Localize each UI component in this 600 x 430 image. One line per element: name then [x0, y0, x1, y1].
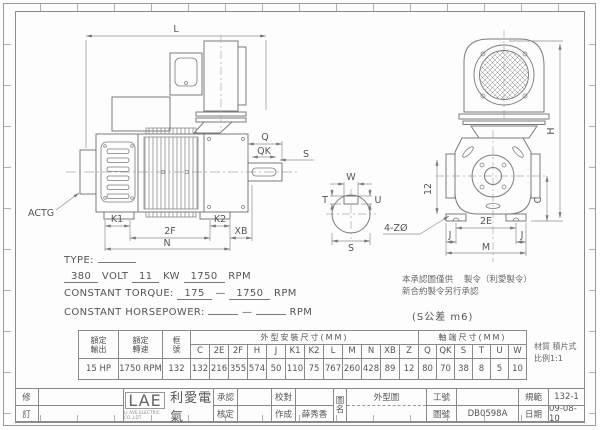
- logo-subtext: LI AVE ELECTRIC CO.,LDT: [124, 410, 166, 420]
- dim-label-W: W: [346, 172, 356, 183]
- drawing-name-empty: [347, 406, 426, 422]
- proof-value: [296, 389, 334, 406]
- val-T: 8: [473, 359, 491, 380]
- corner-slot-left: [461, 145, 474, 158]
- val-U: 5: [491, 359, 509, 380]
- dim-label-M: M: [482, 242, 490, 253]
- val-C: 132: [191, 359, 210, 380]
- company-logo: LAE LI AVE ELECTRIC CO.,LDT 利愛電氣: [124, 389, 214, 423]
- col-QK: QK: [437, 345, 455, 359]
- motor-side-view: [66, 35, 300, 219]
- rated-speed-header: 額定轉速: [119, 331, 163, 359]
- logo-text: LAE: [125, 392, 164, 409]
- cooling-ribs: [144, 137, 198, 209]
- work-no-label: 工號: [427, 389, 457, 406]
- dim-label-J-left: J: [448, 230, 452, 241]
- kw-value: 11: [132, 271, 160, 283]
- hp-dash: —: [242, 307, 252, 318]
- note-line-1: 本承認圖僅供: [402, 275, 453, 285]
- dim-label-J-right: J: [520, 230, 524, 241]
- torque-label: CONSTANT TORQUE:: [64, 288, 174, 299]
- hp-unit: RPM: [290, 307, 313, 318]
- dimension-table: 額定輸出 額定轉速 框號 外型安裝尺寸(MM) 軸端尺寸(MM) C 2E 2F…: [78, 330, 527, 380]
- check-value: [238, 406, 272, 423]
- date-value: 09-08-10: [549, 406, 585, 423]
- blower-mount-flange-2: [463, 121, 545, 125]
- val-K2: 75: [305, 359, 324, 380]
- revision-row-2: [39, 406, 124, 423]
- volt-unit: VOLT: [102, 271, 128, 282]
- approval-notes: 本承認圖僅供 製令（利愛製令） 新合約製令另行承認: [402, 274, 532, 298]
- material-note: 材質 積片式: [534, 341, 577, 353]
- val-W: 10: [509, 359, 527, 380]
- col-N: N: [362, 345, 381, 359]
- col-U: U: [491, 345, 509, 359]
- dim-label-12: 12: [423, 183, 434, 195]
- louvers: [107, 149, 129, 199]
- holes-callout: 4-ZØ: [384, 223, 407, 234]
- proof-label: 校對: [272, 389, 296, 406]
- col-XB: XB: [381, 345, 400, 359]
- hp-label: CONSTANT HORSEPOWER:: [64, 307, 205, 318]
- check-label: 核定: [214, 406, 238, 423]
- val-N: 428: [362, 359, 381, 380]
- spec-value: 132-1: [549, 389, 585, 406]
- col-K2: K2: [305, 345, 324, 359]
- col-W: W: [509, 345, 527, 359]
- frame-value: 132: [163, 359, 191, 380]
- dim-label-H: H: [546, 127, 557, 134]
- val-XB: 89: [381, 359, 400, 380]
- dim-label-2F: 2F: [164, 226, 176, 237]
- bottom-rib-strip: [146, 212, 196, 217]
- keyway: [344, 196, 358, 204]
- mount-dims-group-header: 外型安裝尺寸(MM): [191, 331, 419, 345]
- col-J: J: [267, 345, 286, 359]
- col-H: H: [248, 345, 267, 359]
- rpm-value: 1750: [184, 271, 225, 283]
- revision-label-top: 修: [15, 389, 39, 406]
- drawing-no-value: DB0598A: [457, 406, 519, 423]
- val-J: 50: [267, 359, 286, 380]
- work-no-value: [457, 389, 519, 406]
- logo-company-name: 利愛電氣: [170, 389, 213, 423]
- torque-from: 175: [177, 288, 211, 300]
- col-T: T: [473, 345, 491, 359]
- dim-label-S-side: S: [303, 149, 309, 160]
- revision-label-bottom: 訂: [15, 406, 39, 423]
- motor-front-view: [436, 30, 549, 262]
- rated-output-header: 額定輸出: [79, 331, 119, 359]
- grille-mesh: [480, 51, 529, 100]
- kw-unit: KW: [163, 271, 180, 282]
- front-right-foot: [506, 214, 526, 221]
- speed-value: 1750 RPM: [119, 359, 163, 380]
- col-L: L: [324, 345, 343, 359]
- val-Q: 80: [419, 359, 437, 380]
- made-label: 作成: [272, 406, 296, 423]
- inlet-screw: [185, 82, 188, 85]
- val-K1: 110: [286, 359, 305, 380]
- col-Q: Q: [419, 345, 437, 359]
- col-C: C: [191, 345, 210, 359]
- type-label: TYPE:: [64, 255, 94, 266]
- rpm-unit: RPM: [228, 271, 251, 282]
- dim-label-K1: K1: [111, 214, 123, 225]
- material-scale-note: 材質 積片式 比例1:1: [534, 341, 577, 365]
- table-value-row: 15 HP 1750 RPM 132 132 216 355 574 50 11…: [79, 359, 527, 380]
- val-QK: 70: [437, 359, 455, 380]
- hp-to-blank: [256, 305, 286, 315]
- val-L: 767: [324, 359, 343, 380]
- dim-label-N: N: [163, 238, 170, 249]
- dim-label-U: U: [375, 195, 382, 206]
- output-value: 15 HP: [79, 359, 119, 380]
- shaft-dims-group-header: 軸端尺寸(MM): [419, 331, 527, 345]
- table-header-row-1: 額定輸出 額定轉速 框號 外型安裝尺寸(MM) 軸端尺寸(MM): [79, 331, 527, 345]
- spec-label: 規範: [519, 389, 549, 406]
- scale-note: 比例1:1: [534, 353, 577, 365]
- col-Z: Z: [400, 345, 419, 359]
- val-M: 260: [343, 359, 362, 380]
- bracket-bolts: [208, 138, 245, 209]
- dim-label-C: C: [533, 196, 544, 203]
- note-line-2: 新合約製令另行承認: [402, 286, 532, 298]
- dim-label-XB: XB: [234, 226, 247, 237]
- col-K1: K1: [286, 345, 305, 359]
- dim-label-QK: QK: [257, 146, 271, 157]
- blower-neck: [471, 126, 537, 138]
- val-Z: 12: [400, 359, 419, 380]
- engineering-drawing-page: L K1 K2 2F XB N Q QK S ACTG: [0, 0, 600, 430]
- blower-cap: [238, 47, 246, 105]
- dim-label-K2: K2: [214, 214, 226, 225]
- revision-row-1: [39, 389, 124, 406]
- hp-from-blank: [208, 305, 238, 315]
- tolerance-note: (S公差 m6): [412, 308, 473, 323]
- dim-label-2E: 2E: [480, 216, 492, 227]
- val-2E: 216: [210, 359, 229, 380]
- torque-unit: RPM: [274, 288, 297, 299]
- approve-label: 承認: [214, 389, 238, 406]
- spec-block: TYPE: 380 VOLT 11 KW 1750 RPM CONSTANT T…: [64, 253, 364, 323]
- drawing-name-cell: 外型圖: [347, 389, 427, 423]
- col-M: M: [343, 345, 362, 359]
- actg-label: ACTG: [28, 208, 54, 219]
- made-value: 薛秀香: [296, 406, 334, 423]
- frame-no-header: 框號: [163, 331, 191, 359]
- col-2E: 2E: [210, 345, 229, 359]
- drawing-name-value: 外型圖: [347, 389, 426, 406]
- col-2F: 2F: [229, 345, 248, 359]
- dim-label-Q: Q: [261, 132, 268, 143]
- torque-to: 1750: [229, 288, 270, 300]
- drawing-no-label: 圖號: [427, 406, 457, 423]
- note-line-1b: 製令（利愛製令）: [464, 275, 532, 285]
- val-H: 574: [248, 359, 267, 380]
- approve-value: [238, 389, 272, 406]
- dim-label-L: L: [173, 24, 179, 35]
- drawing-name-label: 圖名: [334, 389, 347, 423]
- type-value-blank: [98, 253, 136, 263]
- title-block: 修 訂 LAE LI AVE ELECTRIC CO.,LDT 利愛電氣 承認 …: [15, 388, 585, 422]
- drive-end-bracket: [204, 134, 248, 212]
- date-label: 日期: [519, 406, 549, 423]
- terminal-box: [112, 97, 170, 131]
- torque-dash: —: [215, 288, 225, 299]
- front-left-foot: [446, 214, 466, 221]
- dim-label-T: T: [321, 195, 328, 206]
- val-S: 38: [455, 359, 473, 380]
- val-2F: 355: [229, 359, 248, 380]
- volt-value: 380: [64, 271, 98, 283]
- corner-slot-right: [511, 145, 524, 158]
- shaft-cross-section: [326, 189, 376, 239]
- blower-duct: [194, 122, 232, 133]
- col-S: S: [455, 345, 473, 359]
